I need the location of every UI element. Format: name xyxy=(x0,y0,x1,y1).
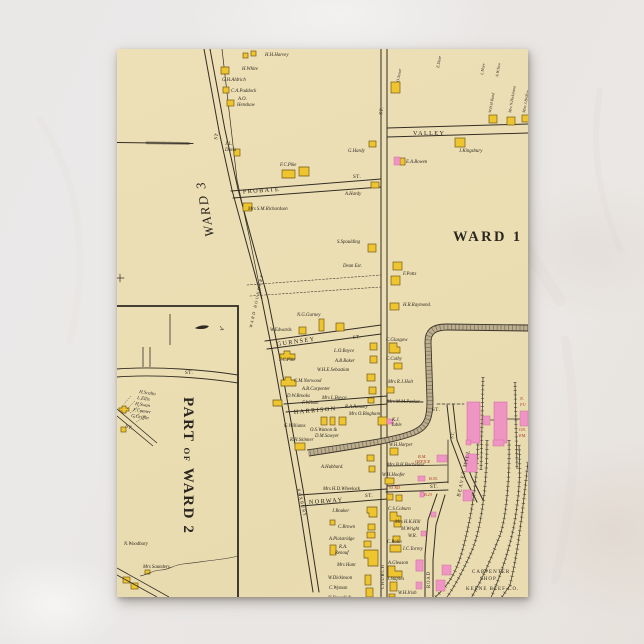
svg-text:KEENE BEEF CO.: KEENE BEEF CO. xyxy=(466,587,519,592)
svg-text:SHOP: SHOP xyxy=(480,577,497,582)
svg-text:W.Dickinson: W.Dickinson xyxy=(328,576,353,581)
svg-text:J.Bouker: J.Bouker xyxy=(332,509,349,514)
svg-text:NORWAY: NORWAY xyxy=(309,497,344,506)
svg-text:W.Edwards: W.Edwards xyxy=(270,328,292,333)
svg-text:H.Russell &: H.Russell & xyxy=(327,596,352,597)
svg-text:WARD 1: WARD 1 xyxy=(453,229,523,245)
svg-text:A.B.Baker: A.B.Baker xyxy=(334,359,355,364)
svg-text:ST.: ST. xyxy=(430,485,438,490)
svg-text:W.H.Irish: W.H.Irish xyxy=(398,591,417,596)
svg-text:F.Potts: F.Potts xyxy=(402,272,417,277)
svg-text:EM.: EM. xyxy=(518,433,526,438)
svg-text:Mrs M.M.Parker: Mrs M.M.Parker xyxy=(386,400,420,405)
svg-text:J.L.: J.L. xyxy=(225,142,232,147)
svg-text:G.Griffin: G.Griffin xyxy=(131,414,150,422)
svg-text:B.55.: B.55. xyxy=(429,476,438,481)
svg-text:D.M.Sawyer: D.M.Sawyer xyxy=(314,434,339,439)
svg-text:ST.: ST. xyxy=(214,131,221,140)
svg-text:L.O.Boyce: L.O.Boyce xyxy=(333,349,355,354)
svg-text:J.Staples: J.Staples xyxy=(387,577,404,582)
svg-text:ROXBURY: ROXBURY xyxy=(296,488,308,518)
svg-text:C.A.Paddock: C.A.Paddock xyxy=(231,89,257,94)
svg-text:I.C.Torrey: I.C.Torrey xyxy=(402,547,424,552)
svg-text:C.Brown: C.Brown xyxy=(338,525,356,530)
svg-text:WARD 3: WARD 3 xyxy=(192,179,217,238)
svg-text:C.Glasgow: C.Glasgow xyxy=(386,338,408,343)
svg-text:F.C.Pike: F.C.Pike xyxy=(278,358,296,363)
svg-text:B.23: B.23 xyxy=(424,492,432,497)
svg-text:VALLEY: VALLEY xyxy=(413,130,445,137)
svg-text:W.H.E.Sebastian: W.H.E.Sebastian xyxy=(317,368,350,373)
svg-text:ST.: ST. xyxy=(379,106,385,115)
svg-text:Dean Est.: Dean Est. xyxy=(342,264,362,269)
svg-text:W.H.H.Rand: W.H.H.Rand xyxy=(487,91,496,113)
svg-text:FU: FU xyxy=(519,402,527,407)
svg-text:N.G.Gurney: N.G.Gurney xyxy=(296,313,321,318)
svg-text:N.Woodbury: N.Woodbury xyxy=(123,542,149,547)
svg-text:Mrs H.K.Hill: Mrs H.K.Hill xyxy=(394,520,421,525)
svg-text:GN.: GN. xyxy=(519,427,526,432)
svg-text:G.H.Aldrich: G.H.Aldrich xyxy=(222,78,246,83)
svg-text:Mrs Saunders: Mrs Saunders xyxy=(142,565,170,570)
svg-text:D.W.Brooks: D.W.Brooks xyxy=(286,394,310,399)
svg-text:A.W.Saw: A.W.Saw xyxy=(494,62,502,78)
svg-text:ST.: ST. xyxy=(185,371,193,376)
svg-text:ST.: ST. xyxy=(365,494,373,499)
svg-text:C.M.Norwood: C.M.Norwood xyxy=(294,379,322,384)
svg-text:R.H.Skinner: R.H.Skinner xyxy=(289,438,314,443)
svg-text:A.Hardy: A.Hardy xyxy=(344,192,362,197)
svg-text:R.A.: R.A. xyxy=(338,545,347,550)
svg-text:E.A.Bowen: E.A.Bowen xyxy=(405,160,428,165)
svg-text:S.Spaulding: S.Spaulding xyxy=(337,240,361,245)
svg-text:H.R.Raymond.: H.R.Raymond. xyxy=(402,303,431,308)
svg-text:ST.: ST. xyxy=(353,175,361,180)
svg-text:ROAD: ROAD xyxy=(427,571,432,588)
svg-text:GURNSEY: GURNSEY xyxy=(276,336,316,348)
svg-text:Tuble: Tuble xyxy=(391,423,403,428)
svg-text:PART OF WARD 2: PART OF WARD 2 xyxy=(180,397,196,534)
svg-text:ST.: ST. xyxy=(449,431,455,440)
svg-text:Henshaw: Henshaw xyxy=(236,103,256,108)
svg-text:F.Wilson: F.Wilson xyxy=(301,401,319,406)
svg-text:O.S.Watson &: O.S.Watson & xyxy=(310,428,337,433)
svg-text:PROBATE: PROBATE xyxy=(243,186,281,196)
svg-text:ST.: ST. xyxy=(432,408,440,413)
svg-text:A.Hubbard.: A.Hubbard. xyxy=(320,465,343,470)
svg-text:L.Marr: L.Marr xyxy=(479,62,486,76)
svg-text:J.Kingsbury: J.Kingsbury xyxy=(459,149,483,154)
svg-text:E.Dane: E.Dane xyxy=(435,55,442,69)
svg-text:C.Wyman: C.Wyman xyxy=(329,586,348,591)
svg-text:Mrs O.Bingham: Mrs O.Bingham xyxy=(348,412,380,417)
svg-text:H.White: H.White xyxy=(241,67,259,72)
svg-text:Mrs Hunt: Mrs Hunt xyxy=(336,563,356,568)
svg-text:Davis: Davis xyxy=(224,148,236,153)
svg-text:OFFICE: OFFICE xyxy=(415,459,431,464)
svg-text:H.H.Harvey: H.H.Harvey xyxy=(264,53,289,58)
svg-text:Mrs L.Boyce: Mrs L.Boyce xyxy=(321,396,347,401)
svg-text:A.Gleason: A.Gleason xyxy=(387,561,409,566)
svg-text:W.H.Hoofer: W.H.Hoofer xyxy=(382,473,405,478)
svg-text:M.Wright: M.Wright xyxy=(400,527,420,532)
svg-text:Mrs N.Dickinson: Mrs N.Dickinson xyxy=(507,85,517,114)
svg-text:W.R.: W.R. xyxy=(408,534,417,539)
svg-text:CARPENTER: CARPENTER xyxy=(472,570,510,575)
svg-text:A.Plaistridge: A.Plaistridge xyxy=(328,537,355,542)
svg-text:HARRISON: HARRISON xyxy=(294,405,337,416)
svg-text:C.Colby: C.Colby xyxy=(386,357,403,362)
svg-text:Miss J.Brillon: Miss J.Brillon xyxy=(521,90,528,114)
svg-text:N.: N. xyxy=(519,396,524,401)
svg-text:ST.: ST. xyxy=(353,335,362,341)
svg-text:W.H.Harper: W.H.Harper xyxy=(389,443,413,448)
svg-text:Mrs H.D.Wheelock: Mrs H.D.Wheelock xyxy=(322,487,361,492)
svg-text:O.Senar: O.Senar xyxy=(395,68,402,82)
svg-text:G.Hardy: G.Hardy xyxy=(348,149,366,154)
svg-text:Renouf: Renouf xyxy=(334,551,349,556)
svg-text:C.Bolio: C.Bolio xyxy=(387,540,402,545)
svg-text:A.O.: A.O. xyxy=(237,97,247,102)
svg-text:Mrs R.J.Holt: Mrs R.J.Holt xyxy=(387,380,414,385)
svg-text:93 RD: 93 RD xyxy=(389,485,401,490)
svg-text:CHURCH: CHURCH xyxy=(381,564,386,589)
svg-text:A.B.Carpenter: A.B.Carpenter xyxy=(301,387,330,392)
svg-text:Mrs S.M.Richardson: Mrs S.M.Richardson xyxy=(247,207,288,212)
svg-text:F.C.Pike: F.C.Pike xyxy=(279,163,297,168)
svg-text:C.S.Coburn: C.S.Coburn xyxy=(388,507,411,512)
svg-text:G.Williams: G.Williams xyxy=(284,424,306,429)
svg-text:R.A.Ranney: R.A.Ranney xyxy=(344,405,369,410)
